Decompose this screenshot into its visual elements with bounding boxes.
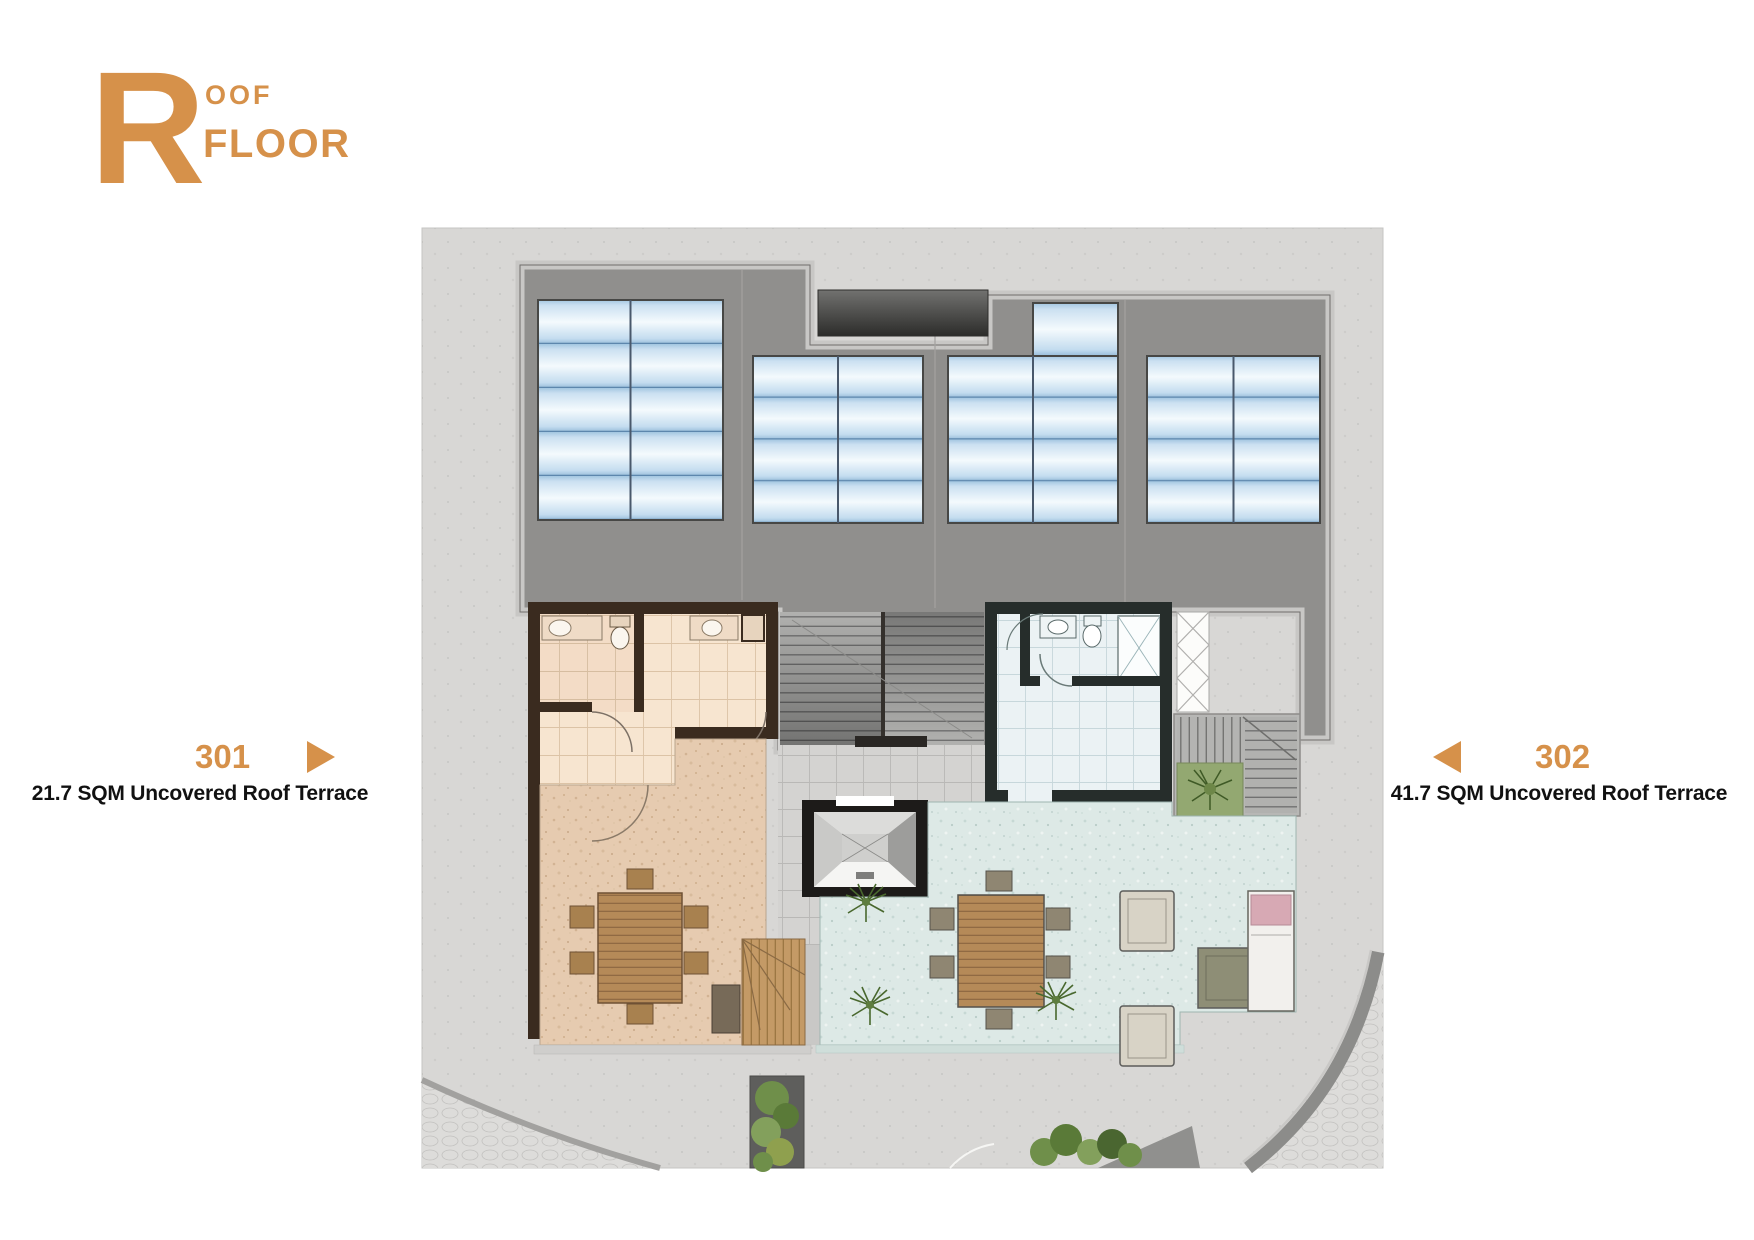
solar-panel-group-1 <box>538 300 723 520</box>
stairwell <box>780 612 984 747</box>
daybed-lounger <box>1248 891 1294 1011</box>
floor-plan <box>0 0 1754 1240</box>
lounge-armchair <box>1120 1006 1174 1066</box>
roof-notch <box>818 290 988 336</box>
roof-floor-plan-page: R OOF FLOOR 301 21.7 SQM Uncovered Roof … <box>0 0 1754 1240</box>
lounge-armchair <box>1120 891 1174 951</box>
hedge-planter <box>750 1076 804 1172</box>
solar-panel-group-2 <box>753 356 923 523</box>
solar-panel-group-4 <box>1147 356 1320 523</box>
x-brace-shaft <box>1177 612 1209 712</box>
elevator <box>802 796 928 897</box>
external-stair <box>1174 714 1300 816</box>
